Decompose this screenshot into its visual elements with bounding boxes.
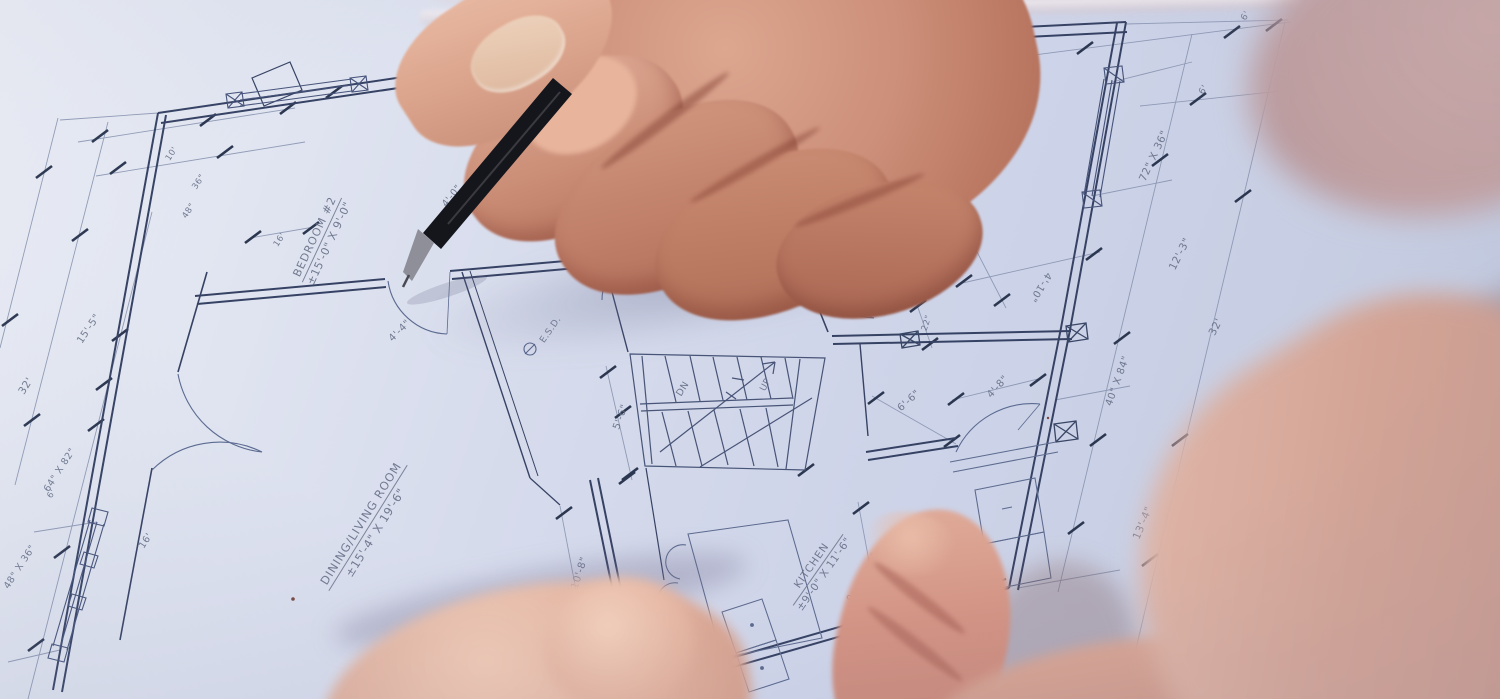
photo-of-blueprint-with-hands: BEDROOM #2 ±15'-0" X 9'-0" MASTER BEDROO… [0, 0, 1500, 699]
pencil-lead [403, 275, 409, 287]
